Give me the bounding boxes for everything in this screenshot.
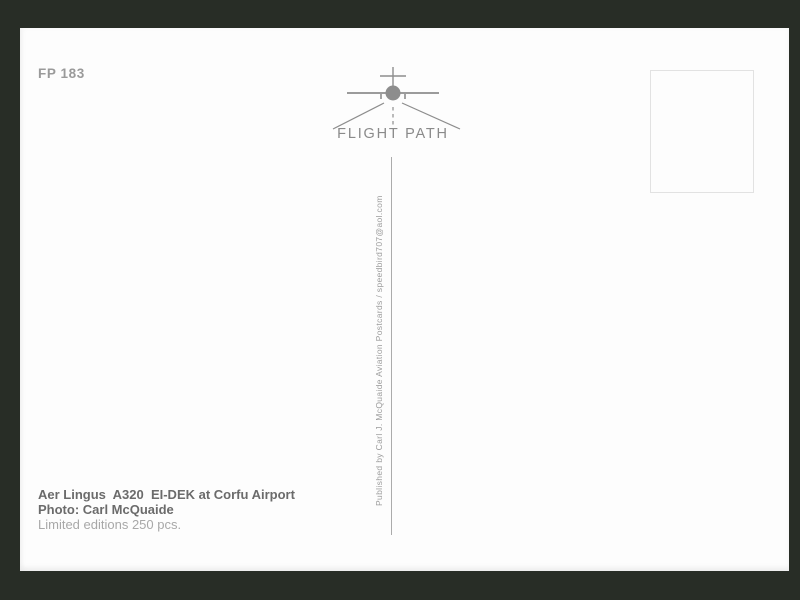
brand-wordmark: FLIGHT PATH bbox=[312, 126, 474, 142]
photo-credit: Photo: Carl McQuaide bbox=[38, 502, 295, 517]
publisher-credit-line: Published by Carl J. McQuaide Aviation P… bbox=[374, 195, 384, 506]
edition-note: Limited editions 250 pcs. bbox=[38, 517, 295, 532]
center-divider-line bbox=[391, 157, 392, 535]
airplane-front-runway-icon bbox=[325, 63, 465, 135]
caption-title: Aer Lingus A320 EI-DEK at Corfu Airport bbox=[38, 487, 295, 502]
catalog-number: FP 183 bbox=[38, 66, 85, 81]
stamp-box bbox=[650, 70, 754, 193]
caption-block: Aer Lingus A320 EI-DEK at Corfu Airport … bbox=[38, 487, 295, 532]
